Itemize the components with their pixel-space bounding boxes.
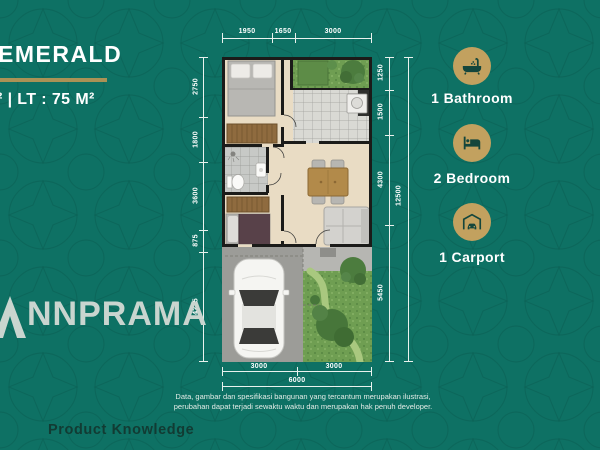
type-title: EMERALD bbox=[0, 41, 122, 68]
dim-line-bottom-total bbox=[222, 386, 372, 387]
tick bbox=[371, 33, 372, 43]
tick bbox=[199, 361, 208, 362]
tick bbox=[371, 367, 372, 376]
bathroom-count-label: 1 Bathroom bbox=[397, 90, 547, 106]
brand-logo-mark bbox=[0, 296, 28, 338]
disclaimer: Data, gambar dan spesifikasi bangunan ya… bbox=[133, 392, 473, 412]
dim-label: 4300 bbox=[377, 165, 386, 195]
tick bbox=[385, 90, 394, 91]
footer-label: Product Knowledge bbox=[48, 422, 194, 438]
dim-label: 3000 bbox=[313, 27, 353, 36]
tick bbox=[385, 57, 394, 58]
tick bbox=[404, 57, 413, 58]
brand-logo-text: NNPRAMA bbox=[27, 297, 208, 331]
floorplan-illustration bbox=[222, 57, 372, 362]
dim-label: 1950 bbox=[227, 27, 267, 36]
disclaimer-line-1: Data, gambar dan spesifikasi bangunan ya… bbox=[133, 392, 473, 402]
bed-icon bbox=[461, 132, 483, 154]
tick bbox=[199, 57, 208, 58]
dim-line-top bbox=[222, 38, 372, 39]
dim-label: 875 bbox=[192, 226, 201, 256]
tick bbox=[222, 367, 223, 376]
dim-label: 1250 bbox=[377, 58, 386, 88]
dim-label: 3000 bbox=[314, 362, 354, 371]
tick bbox=[222, 382, 223, 391]
tick bbox=[371, 382, 372, 391]
dim-label: 3000 bbox=[239, 362, 279, 371]
floorplan bbox=[222, 57, 372, 362]
bedroom-feature-circle bbox=[453, 124, 491, 162]
carport-icon bbox=[461, 211, 483, 233]
service-area bbox=[347, 94, 367, 113]
bedroom-2 bbox=[226, 197, 270, 244]
tick bbox=[199, 117, 208, 118]
dim-label: 2750 bbox=[192, 72, 201, 102]
dim-label: 6000 bbox=[277, 376, 317, 385]
dim-label: 3600 bbox=[192, 181, 201, 211]
dim-label: 1500 bbox=[377, 97, 386, 127]
tick bbox=[404, 361, 413, 362]
bedroom-count-label: 2 Bedroom bbox=[397, 170, 547, 186]
car-top-view bbox=[229, 259, 289, 358]
tick bbox=[385, 225, 394, 226]
bathtub-icon bbox=[461, 55, 483, 77]
tick bbox=[199, 162, 208, 163]
carport-feature-circle bbox=[453, 203, 491, 241]
sofa bbox=[324, 207, 369, 245]
dim-label: 5450 bbox=[377, 278, 386, 308]
bedroom-1 bbox=[227, 61, 277, 143]
tick bbox=[222, 33, 223, 43]
disclaimer-line-2: perubahan dapat terjadi sewaktu waktu da… bbox=[133, 402, 473, 412]
product-knowledge-slide: EMERALD ² | LT : 75 M² bbox=[0, 0, 600, 450]
dim-line-right bbox=[389, 57, 390, 362]
tick bbox=[385, 361, 394, 362]
gold-divider bbox=[0, 78, 107, 82]
area-spec: ² | LT : 75 M² bbox=[0, 91, 95, 109]
dim-label: 1800 bbox=[192, 125, 201, 155]
carport-count-label: 1 Carport bbox=[397, 249, 547, 265]
bathroom-feature-circle bbox=[453, 47, 491, 85]
tick bbox=[297, 367, 298, 376]
dim-label: 1650 bbox=[263, 27, 303, 36]
tick bbox=[385, 135, 394, 136]
